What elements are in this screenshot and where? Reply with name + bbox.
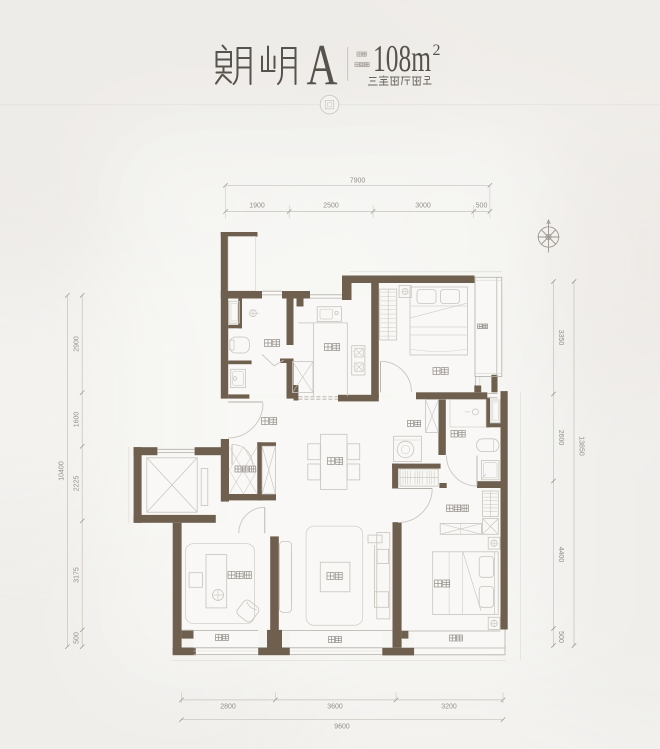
svg-text:3175: 3175: [74, 567, 81, 583]
svg-text:500: 500: [74, 632, 81, 644]
svg-text:2500: 2500: [323, 203, 339, 210]
svg-text:1600: 1600: [74, 412, 81, 428]
svg-text:3000: 3000: [415, 203, 431, 210]
svg-text:3600: 3600: [327, 704, 343, 711]
svg-text:A: A: [307, 34, 338, 98]
svg-text:2900: 2900: [74, 336, 81, 352]
svg-text:4400: 4400: [557, 547, 564, 563]
svg-text:7900: 7900: [350, 177, 366, 184]
svg-text:2225: 2225: [74, 476, 81, 492]
svg-text:500: 500: [476, 203, 488, 210]
svg-text:1900: 1900: [249, 203, 265, 210]
svg-text:2800: 2800: [220, 704, 236, 711]
svg-text:10400: 10400: [59, 461, 66, 481]
svg-text:9600: 9600: [334, 723, 350, 730]
svg-text:13850: 13850: [577, 436, 584, 456]
svg-text:500: 500: [557, 631, 564, 643]
svg-text:3200: 3200: [441, 704, 457, 711]
svg-text:3350: 3350: [557, 330, 564, 346]
svg-text:2600: 2600: [557, 430, 564, 446]
svg-text:108m: 108m: [373, 38, 431, 80]
svg-text:2: 2: [433, 42, 441, 59]
